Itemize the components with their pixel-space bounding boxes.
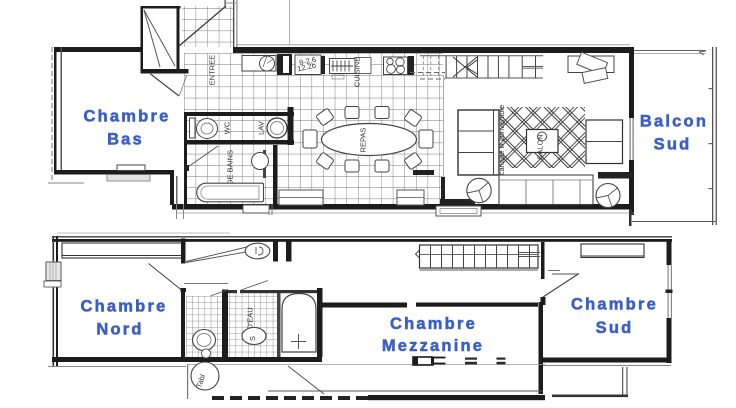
svg-text:Chambre: Chambre <box>390 315 477 333</box>
svg-text:Chambre: Chambre <box>571 296 658 314</box>
svg-text:LAV: LAV <box>257 121 266 135</box>
svg-text:Nord: Nord <box>96 321 143 339</box>
svg-text:Sud: Sud <box>596 319 634 337</box>
svg-text:Chambre: Chambre <box>81 298 168 316</box>
svg-text:S: S <box>248 336 257 341</box>
svg-text:ENTREE: ENTREE <box>208 55 217 85</box>
svg-text:canape lit convertible: canape lit convertible <box>497 105 506 175</box>
svg-text:WC: WC <box>223 121 232 134</box>
svg-text:Mezzanine: Mezzanine <box>382 337 484 355</box>
svg-text:Sud: Sud <box>654 136 692 154</box>
svg-text:Chambre: Chambre <box>84 108 171 126</box>
svg-text:CUISINE: CUISINE <box>353 57 362 87</box>
svg-text:Balcon: Balcon <box>640 113 708 131</box>
svg-text:REPAS: REPAS <box>359 128 368 153</box>
svg-text:SALON: SALON <box>536 134 545 159</box>
svg-text:Bas: Bas <box>107 131 144 149</box>
